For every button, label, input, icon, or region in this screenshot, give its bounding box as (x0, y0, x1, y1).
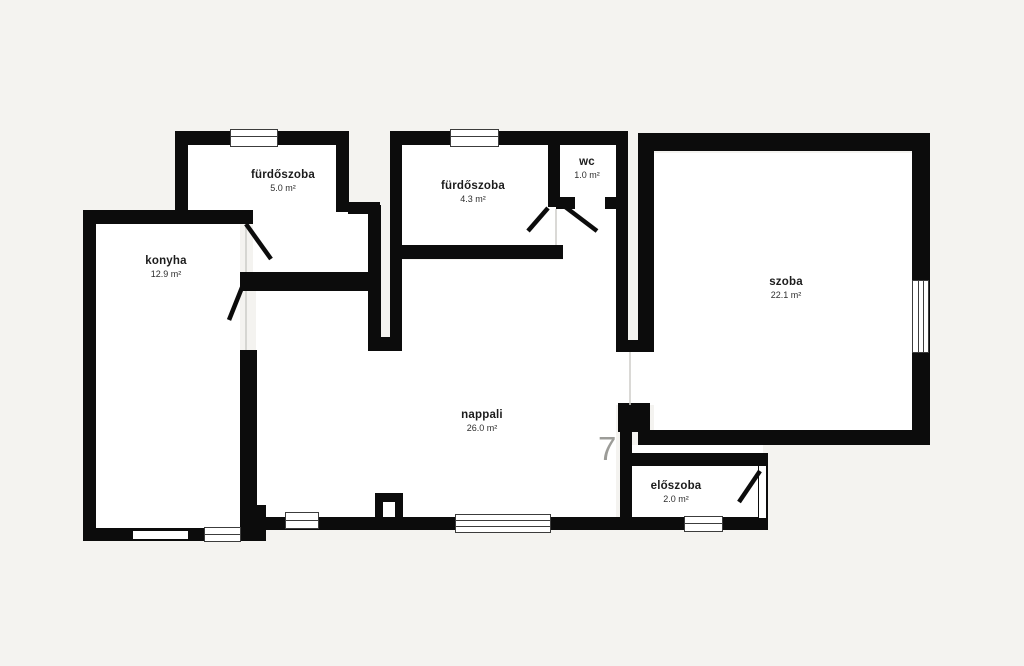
window-szoba (912, 280, 929, 353)
wall-top-middle (390, 131, 628, 145)
room-name: wc (574, 156, 600, 169)
room-wc-door-gap (575, 197, 605, 209)
wall-bathroom2-left (390, 131, 402, 351)
wall-entry-top (628, 453, 768, 466)
room-label-kitchen: konyha 12.9 m² (145, 255, 186, 281)
room-label-bathroom2: fürdőszoba 4.3 m² (441, 180, 505, 206)
room-area: 5.0 m² (251, 182, 315, 195)
room-label-wc: wc 1.0 m² (574, 156, 600, 182)
window-pane-divider (923, 281, 924, 352)
window-pane-divider (456, 520, 550, 521)
window-kitchen-inset (133, 531, 188, 539)
room-name: konyha (145, 255, 186, 268)
watermark-fragment: 7 (598, 432, 616, 465)
wall-hall-east (616, 131, 628, 352)
window-pane-divider (451, 136, 498, 137)
floor-plan: 7 (0, 0, 1024, 666)
room-hall-interior (563, 209, 616, 260)
wall-bathroom2-bottom (390, 245, 563, 259)
wall-wc-stub-left (556, 197, 575, 209)
wall-bathroom1-left (175, 131, 188, 214)
room-label-living: nappali 26.0 m² (461, 409, 503, 435)
wall-szoba-bottom (638, 430, 928, 445)
window-pane-divider (918, 281, 919, 352)
room-area: 1.0 m² (574, 169, 600, 182)
wall-szoba-left (638, 133, 654, 352)
window-entry (684, 516, 723, 532)
room-area: 22.1 m² (769, 289, 803, 302)
window-pane-divider (456, 526, 550, 527)
window-bathroom2 (450, 129, 499, 147)
window-living-small (285, 512, 319, 529)
room-label-bathroom1: fürdőszoba 5.0 m² (251, 169, 315, 195)
room-area: 4.3 m² (441, 193, 505, 206)
window-pane-divider (286, 520, 318, 521)
window-pane-divider (685, 523, 722, 524)
wall-szoba-top (638, 133, 930, 151)
room-label-entry: előszoba 2.0 m² (651, 480, 702, 506)
wall-bathroom2-wc-divider (548, 131, 560, 207)
room-szoba-door-gap (616, 352, 654, 405)
window-kitchen (204, 527, 241, 542)
wall-kitchen-left (83, 210, 96, 541)
room-label-szoba: szoba 22.1 m² (769, 276, 803, 302)
chimney-notch (383, 502, 395, 517)
wall-bathroom1-right (336, 131, 349, 212)
strip-szoba-entry (632, 445, 763, 453)
window-bathroom1 (230, 129, 278, 147)
wall-corridor-south (240, 272, 378, 291)
shaft-gap-right (628, 131, 638, 352)
wall-kitchen-top (83, 210, 253, 224)
window-pane-divider (231, 136, 277, 137)
room-area: 26.0 m² (461, 422, 503, 435)
window-pane-divider (205, 534, 240, 535)
room-bathroom2-door-gap (548, 207, 563, 245)
room-living-interior (256, 260, 616, 517)
room-name: fürdőszoba (251, 169, 315, 182)
room-name: előszoba (651, 480, 702, 493)
room-area: 2.0 m² (651, 493, 702, 506)
entry-door-opening (759, 466, 766, 518)
room-name: szoba (769, 276, 803, 289)
room-area: 12.9 m² (145, 268, 186, 281)
shaft-gap-left (381, 214, 390, 337)
room-name: nappali (461, 409, 503, 422)
window-living-large (455, 514, 551, 533)
room-name: fürdőszoba (441, 180, 505, 193)
